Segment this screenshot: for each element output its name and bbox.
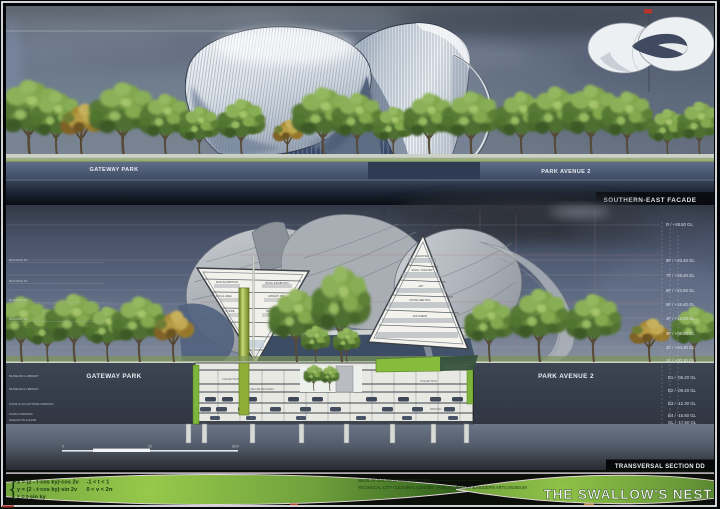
svg-text:COLLECTION: COLLECTION <box>420 379 437 383</box>
svg-text:x = (2 - t·cos ky)·cos 2v: x = (2 - t·cos ky)·cos 2v -1 < t < 1 <box>17 480 109 486</box>
svg-text:STORE: STORE <box>226 309 235 313</box>
svg-text:10: 10 <box>148 445 152 449</box>
svg-text:1F / +00.30 GL: 1F / +00.30 GL <box>666 358 695 363</box>
svg-text:TECHNICAL CITY CULTURAL CENTER: TECHNICAL CITY CULTURAL CENTER - PUBLIC … <box>358 485 527 490</box>
svg-text:SOUTHERN-EAST FACADE: SOUTHERN-EAST FACADE <box>603 197 696 204</box>
svg-text:GATEWAY PARK: GATEWAY PARK <box>86 373 141 380</box>
svg-text:2F / +04.30 GL: 2F / +04.30 GL <box>666 345 695 350</box>
svg-text:CURIO PARKING: CURIO PARKING <box>9 412 33 416</box>
svg-text:z = t·sin ky: z = t·sin ky <box>17 495 47 501</box>
svg-text:20 m: 20 m <box>232 445 239 449</box>
svg-text:MAIN EXHIBITION: MAIN EXHIBITION <box>216 280 238 284</box>
svg-text:B3 / -12.30 GL: B3 / -12.30 GL <box>668 401 697 406</box>
svg-text:B2 / -09.40 GL: B2 / -09.40 GL <box>668 388 697 393</box>
svg-text:BUILDING 2F: BUILDING 2F <box>9 317 28 321</box>
svg-text:GL / -17.50 GL: GL / -17.50 GL <box>668 420 697 425</box>
svg-text:BUILDING 6F: BUILDING 6F <box>9 279 28 283</box>
svg-text:SKELETON FLOOR: SKELETON FLOOR <box>9 418 37 422</box>
svg-text:BOOK EXHIBITION: BOOK EXHIBITION <box>266 281 289 285</box>
svg-text:THE SWALLOW'S NEST: THE SWALLOW'S NEST <box>544 487 713 502</box>
svg-text:NIKOLAY GALABOV ARCHITECTURE —: NIKOLAY GALABOV ARCHITECTURE ———————————… <box>358 478 483 483</box>
svg-text:SOUTHERN: SOUTHERN <box>413 314 428 318</box>
svg-text:SMALL THEATER: SMALL THEATER <box>412 268 433 272</box>
svg-text:5F / +18.40 GL: 5F / +18.40 GL <box>666 302 695 307</box>
svg-text:B1 / -06.20 GL: B1 / -06.20 GL <box>668 375 697 380</box>
svg-text:BUILDING 8F: BUILDING 8F <box>9 258 28 262</box>
svg-text:CELLAR ARCHIVES: CELLAR ARCHIVES <box>250 387 274 391</box>
svg-text:3F / +08.50 GL: 3F / +08.50 GL <box>666 331 695 336</box>
svg-text:GATEWAY PARK: GATEWAY PARK <box>89 167 138 173</box>
svg-text:LOCAL AREA: LOCAL AREA <box>216 294 232 298</box>
svg-text:PARK AVENUE 2: PARK AVENUE 2 <box>541 169 591 175</box>
svg-text:4F / +13.20 GL: 4F / +13.20 GL <box>666 316 695 321</box>
svg-text:CONS & SCULPTURE PARKING: CONS & SCULPTURE PARKING <box>9 402 54 406</box>
svg-text:0: 0 <box>62 445 64 449</box>
svg-text:6F / +23.60 GL: 6F / +23.60 GL <box>666 288 695 293</box>
svg-text:BUILDING 4F: BUILDING 4F <box>9 298 28 302</box>
svg-text:TRANSVERSAL SECTION DD: TRANSVERSAL SECTION DD <box>615 464 706 470</box>
svg-text:MOVIE MEETING: MOVIE MEETING <box>410 298 431 302</box>
svg-text:y = (2 - t·cos ky)·sin 2v: y = (2 - t·cos ky)·sin 2v 0 < v < 2π <box>17 487 114 493</box>
svg-text:GRANTER: GRANTER <box>416 254 429 258</box>
svg-text:MUSEUM & LIBRARY: MUSEUM & LIBRARY <box>9 374 39 378</box>
svg-text:MUSEUM & LIBRARY: MUSEUM & LIBRARY <box>9 387 39 391</box>
svg-text:B4 / -15.50 GL: B4 / -15.50 GL <box>668 413 697 418</box>
svg-text:8F / +33.40 GL: 8F / +33.40 GL <box>666 258 695 263</box>
svg-text:PARKING: PARKING <box>430 407 441 411</box>
svg-text:COLLECTION: COLLECTION <box>222 377 239 381</box>
svg-text:PARKING: PARKING <box>430 397 441 401</box>
svg-text:PARK AVENUE 2: PARK AVENUE 2 <box>538 373 594 380</box>
svg-text:{: { <box>10 479 17 501</box>
svg-text:7F / +28.20 GL: 7F / +28.20 GL <box>666 273 695 278</box>
svg-text:R / +48.50 GL: R / +48.50 GL <box>666 222 693 227</box>
svg-text:ART: ART <box>418 284 424 288</box>
